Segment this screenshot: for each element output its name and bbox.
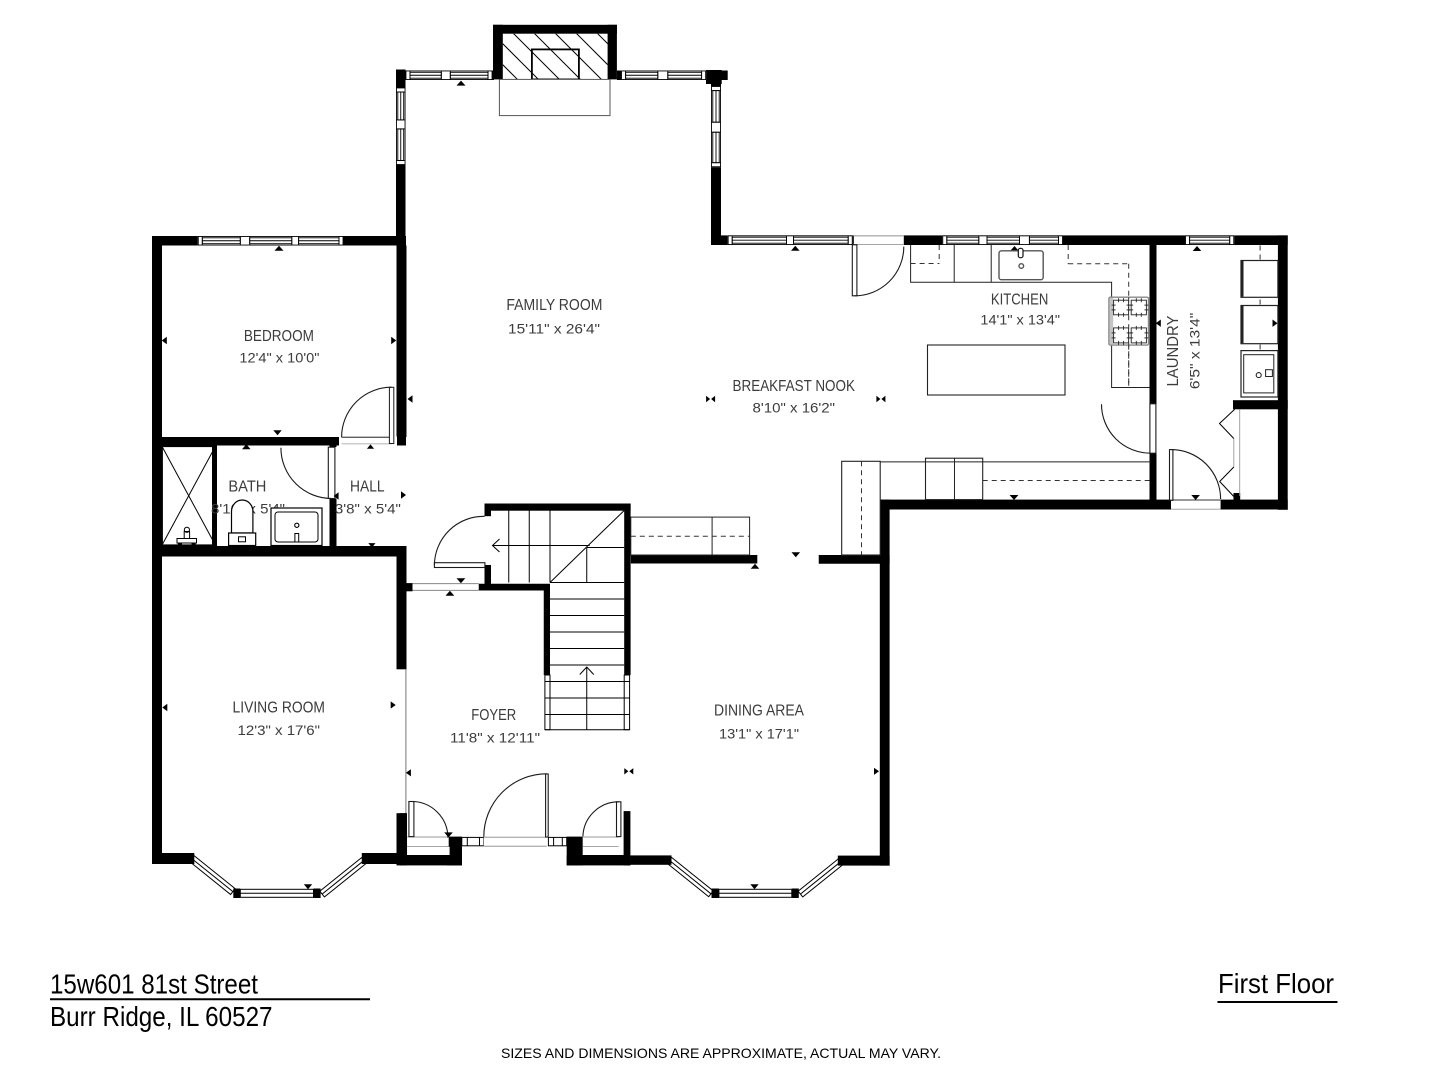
svg-text:HALL: HALL bbox=[350, 478, 385, 495]
svg-text:13'1" x 17'1": 13'1" x 17'1" bbox=[719, 726, 799, 742]
svg-text:FAMILY ROOM: FAMILY ROOM bbox=[506, 297, 602, 314]
svg-text:First Floor: First Floor bbox=[1218, 968, 1334, 999]
svg-text:8'10" x 16'2": 8'10" x 16'2" bbox=[753, 400, 836, 416]
svg-text:12'3" x 17'6": 12'3" x 17'6" bbox=[238, 722, 321, 738]
svg-text:KITCHEN: KITCHEN bbox=[991, 292, 1049, 309]
svg-text:6'5" x 13'4": 6'5" x 13'4" bbox=[1187, 313, 1203, 389]
svg-text:SIZES AND DIMENSIONS ARE APPRO: SIZES AND DIMENSIONS ARE APPROXIMATE, AC… bbox=[501, 1045, 941, 1061]
svg-text:14'1" x 13'4": 14'1" x 13'4" bbox=[980, 312, 1060, 328]
svg-text:DINING AREA: DINING AREA bbox=[714, 703, 805, 720]
svg-text:LAUNDRY: LAUNDRY bbox=[1165, 316, 1182, 387]
svg-text:11'8" x 12'11": 11'8" x 12'11" bbox=[450, 730, 540, 746]
svg-text:FOYER: FOYER bbox=[471, 707, 516, 724]
svg-text:BEDROOM: BEDROOM bbox=[244, 328, 314, 345]
svg-text:Burr Ridge, IL 60527: Burr Ridge, IL 60527 bbox=[50, 1001, 273, 1032]
svg-text:LIVING ROOM: LIVING ROOM bbox=[233, 700, 326, 717]
svg-text:12'4" x 10'0": 12'4" x 10'0" bbox=[239, 350, 319, 366]
svg-text:3'8" x 5'4": 3'8" x 5'4" bbox=[335, 501, 401, 517]
svg-text:BATH: BATH bbox=[228, 478, 266, 495]
svg-text:15w601 81st Street: 15w601 81st Street bbox=[50, 969, 258, 1000]
svg-text:BREAKFAST NOOK: BREAKFAST NOOK bbox=[733, 378, 856, 395]
svg-text:15'11" x 26'4": 15'11" x 26'4" bbox=[508, 321, 600, 337]
